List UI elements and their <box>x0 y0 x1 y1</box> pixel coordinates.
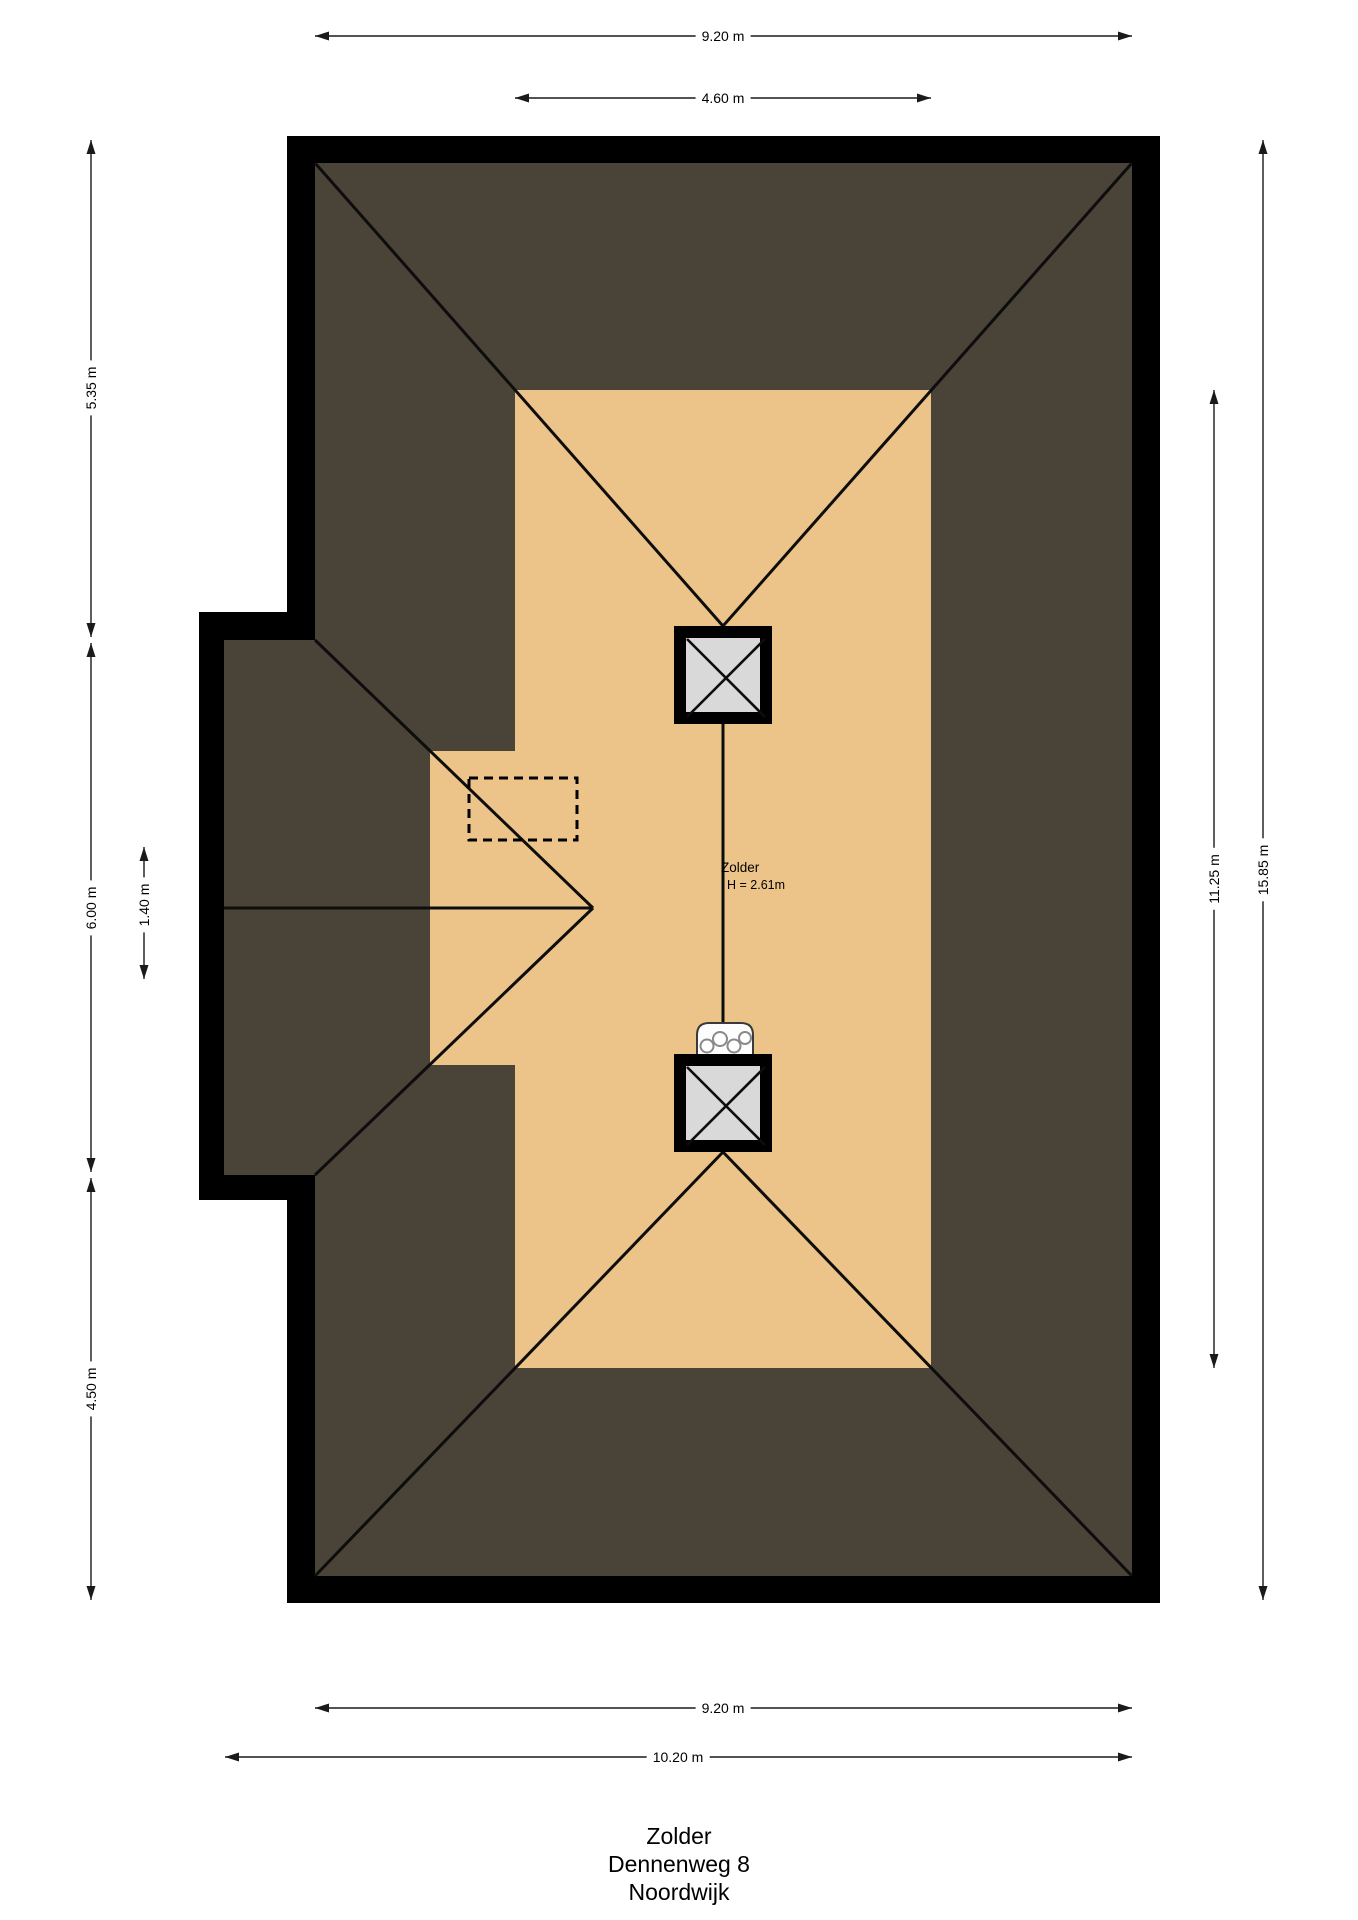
vent-hole <box>713 1032 727 1046</box>
title-line-3: Noordwijk <box>608 1878 750 1906</box>
vent-icon <box>697 1023 753 1055</box>
roof-window-upper <box>680 632 766 718</box>
dim-label-left-inner: 1.40 m <box>135 878 153 933</box>
dim-label-left-upper: 5.35 m <box>82 361 100 416</box>
vent-hole <box>739 1032 751 1044</box>
title-block: Zolder Dennenweg 8 Noordwijk <box>608 1822 750 1906</box>
title-line-1: Zolder <box>608 1822 750 1850</box>
dim-label-right-inner-height: 11.25 m <box>1205 848 1223 910</box>
vent-hole <box>701 1040 714 1053</box>
floor-plan-drawing <box>0 0 1358 1920</box>
roof-window-lower <box>680 1060 766 1146</box>
title-line-2: Dennenweg 8 <box>608 1850 750 1878</box>
room-height-label: H = 2.61m <box>727 878 785 892</box>
dim-label-right-total-height: 15.85 m <box>1254 839 1272 902</box>
dim-label-bottom-total-width: 10.20 m <box>647 1748 710 1766</box>
room-name-label: Zolder <box>721 860 759 875</box>
floor-plan-page: 9.20 m 4.60 m 9.20 m 10.20 m 5.35 m 6.00… <box>0 0 1358 1920</box>
dim-label-left-middle: 6.00 m <box>82 881 100 936</box>
dim-label-top-width: 9.20 m <box>696 27 751 45</box>
dim-label-bottom-width: 9.20 m <box>696 1699 751 1717</box>
dim-label-top-inner-width: 4.60 m <box>696 89 751 107</box>
dim-label-left-lower: 4.50 m <box>82 1362 100 1417</box>
vent-hole <box>728 1040 741 1053</box>
